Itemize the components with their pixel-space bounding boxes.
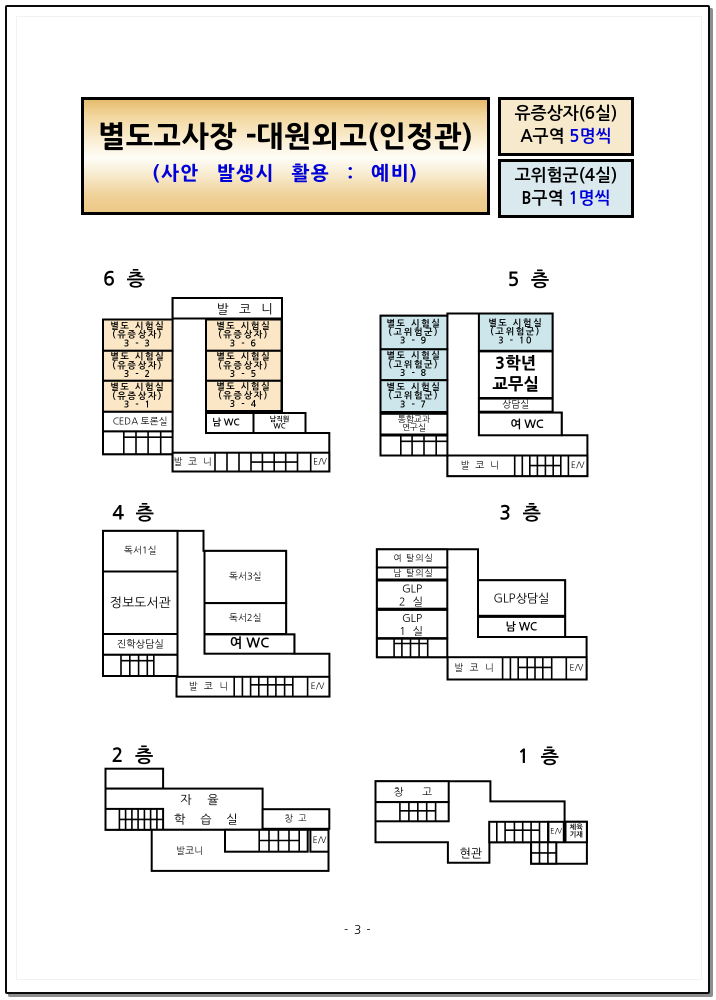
svg-text:독서3실: 독서3실	[229, 572, 262, 582]
svg-text:E/V: E/V	[571, 462, 585, 470]
svg-text:3 - 2: 3 - 2	[124, 370, 152, 379]
svg-text:E/V: E/V	[570, 665, 584, 673]
svg-text:3학년: 3학년	[495, 354, 536, 372]
svg-text:3 - 3: 3 - 3	[124, 339, 152, 348]
svg-text:(고위험군): (고위험군)	[490, 327, 541, 337]
svg-text:학: 학	[174, 812, 186, 825]
svg-text:2 층: 2 층	[112, 745, 157, 765]
svg-text:별도 시험실: 별도 시험실	[386, 382, 441, 392]
svg-text:E/V: E/V	[550, 828, 562, 836]
svg-text:(유증상자): (유증상자)	[113, 391, 164, 401]
svg-text:고: 고	[298, 815, 306, 824]
svg-text:E/V: E/V	[311, 683, 325, 691]
svg-text:자: 자	[180, 794, 191, 806]
svg-text:통합교과: 통합교과	[398, 414, 431, 424]
svg-text:3 - 1: 3 - 1	[124, 401, 152, 410]
svg-text:연구실: 연구실	[402, 422, 426, 432]
svg-text:별도 시험실: 별도 시험실	[216, 382, 271, 392]
svg-text:창: 창	[284, 814, 293, 824]
svg-text:3 - 10: 3 - 10	[498, 336, 533, 345]
svg-text:(유증상자): (유증상자)	[218, 390, 269, 400]
svg-text:남직원: 남직원	[270, 414, 290, 423]
svg-text:E/V: E/V	[313, 458, 327, 466]
svg-text:별도 시험실: 별도 시험실	[216, 321, 271, 331]
svg-text:(고위험군): (고위험군)	[389, 359, 440, 369]
svg-text:여 WC: 여 WC	[510, 418, 544, 430]
svg-text:(고위험군): (고위험군)	[389, 391, 440, 401]
svg-text:(유증상자): (유증상자)	[113, 360, 164, 370]
svg-text:3 층: 3 층	[499, 503, 544, 523]
svg-text:정보도서관: 정보도서관	[110, 596, 171, 609]
svg-text:4 층: 4 층	[112, 503, 157, 523]
svg-text:독서2실: 독서2실	[229, 613, 262, 623]
svg-text:발 코 니: 발 코 니	[174, 457, 214, 467]
svg-text:6 층: 6 층	[103, 269, 148, 289]
svg-text:3 - 8: 3 - 8	[400, 369, 428, 378]
svg-text:별도 시험실: 별도 시험실	[110, 352, 165, 362]
svg-text:1 층: 1 층	[517, 746, 562, 766]
svg-text:CEDA 토론실: CEDA 토론실	[112, 416, 167, 426]
svg-text:여 WC: 여 WC	[230, 636, 269, 650]
svg-text:별도 시험실: 별도 시험실	[110, 382, 165, 392]
svg-text:(고위험군): (고위험군)	[389, 327, 440, 337]
svg-text:별도 시험실: 별도 시험실	[386, 351, 441, 361]
svg-text:발 코 니: 발 코 니	[189, 681, 230, 691]
svg-text:3 - 4: 3 - 4	[230, 400, 258, 409]
svg-text:3 - 7: 3 - 7	[400, 400, 428, 409]
svg-text:3 - 6: 3 - 6	[230, 339, 258, 348]
svg-text:독서1실: 독서1실	[124, 546, 157, 556]
svg-text:3 - 9: 3 - 9	[400, 337, 428, 346]
svg-text:(유증상자): (유증상자)	[113, 330, 164, 340]
svg-text:체육: 체육	[570, 823, 584, 831]
svg-text:기재: 기재	[570, 831, 583, 839]
svg-text:상담실: 상담실	[502, 399, 529, 410]
svg-text:창: 창	[394, 786, 404, 797]
svg-text:발 코 니: 발 코 니	[461, 461, 501, 471]
svg-text:교무실: 교무실	[493, 375, 540, 393]
svg-text:E/V: E/V	[313, 837, 327, 845]
svg-text:GLP상담실: GLP상담실	[493, 591, 549, 604]
svg-text:(유증상자): (유증상자)	[218, 330, 269, 340]
svg-text:1 실: 1 실	[399, 626, 425, 637]
svg-text:2 실: 2 실	[399, 597, 425, 608]
svg-text:별도 시험실: 별도 시험실	[488, 318, 543, 328]
svg-text:발 코 니: 발 코 니	[217, 303, 277, 316]
svg-text:GLP: GLP	[402, 613, 422, 624]
svg-text:GLP: GLP	[402, 584, 422, 595]
svg-text:발 코 니: 발 코 니	[455, 663, 496, 673]
svg-text:별도 시험실: 별도 시험실	[386, 318, 441, 328]
svg-text:WC: WC	[274, 423, 286, 430]
svg-text:5 층: 5 층	[507, 269, 552, 289]
svg-text:남 WC: 남 WC	[505, 620, 537, 632]
svg-text:현관: 현관	[459, 847, 482, 859]
svg-text:별도 시험실: 별도 시험실	[110, 321, 165, 331]
svg-text:진학상담실: 진학상담실	[117, 638, 164, 649]
svg-text:3 - 5: 3 - 5	[230, 370, 258, 379]
svg-text:별도 시험실: 별도 시험실	[216, 352, 271, 362]
svg-text:남 WC: 남 WC	[212, 418, 240, 428]
svg-text:고: 고	[422, 786, 432, 797]
svg-text:발코니: 발코니	[176, 846, 203, 856]
svg-text:습: 습	[200, 813, 211, 825]
svg-text:남 탈의실: 남 탈의실	[393, 568, 434, 578]
svg-text:여 탈의실: 여 탈의실	[393, 553, 434, 563]
svg-text:(유증상자): (유증상자)	[218, 360, 269, 370]
svg-text:율: 율	[207, 794, 218, 806]
svg-text:실: 실	[226, 813, 237, 825]
